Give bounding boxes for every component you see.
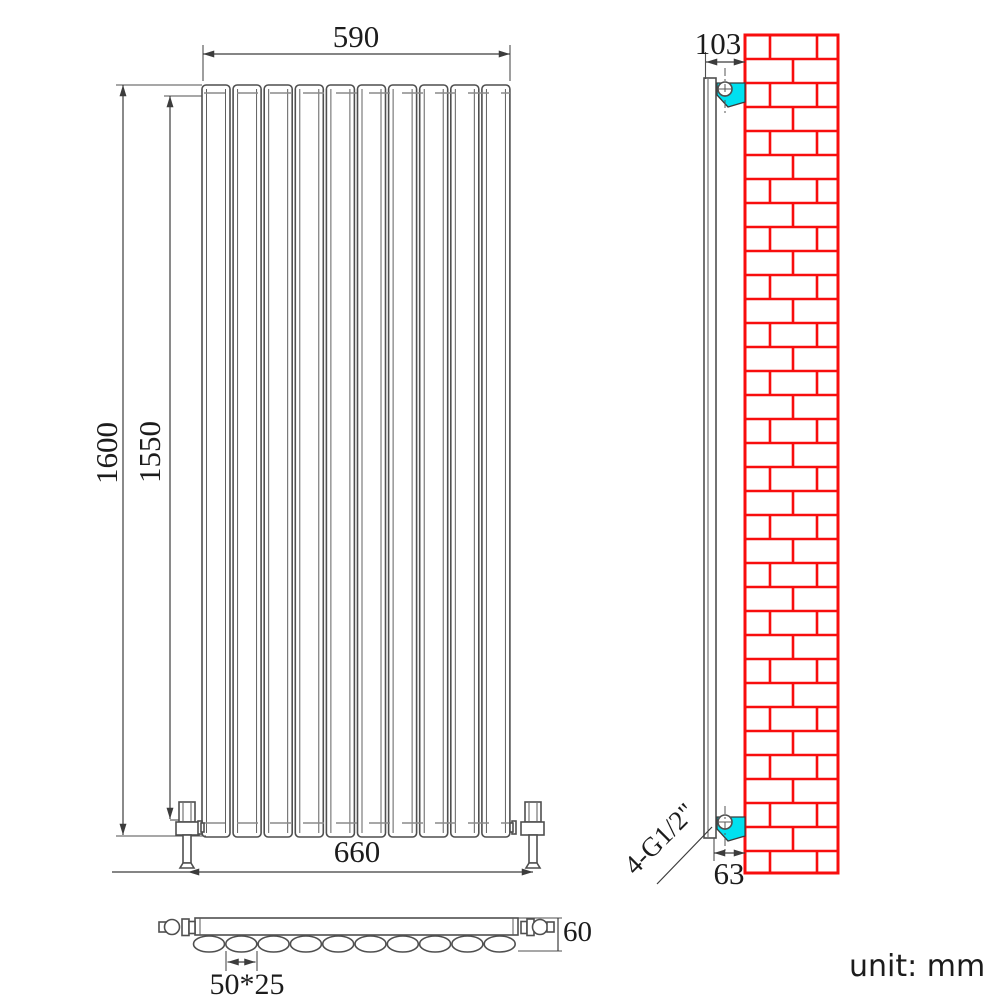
oval-tube — [452, 936, 483, 952]
valve-pipe — [183, 835, 191, 863]
dim-wall-offset-top-label: 103 — [695, 26, 742, 61]
valve-knob — [525, 802, 541, 822]
top-rail — [195, 918, 518, 935]
dim-height-inner-label: 1550 — [132, 421, 167, 483]
wall-outline — [745, 35, 838, 873]
radiator-profile — [704, 78, 716, 838]
brick-wall — [745, 35, 838, 873]
end-cap — [547, 922, 554, 932]
valve-knob — [179, 802, 195, 822]
connection-port — [165, 920, 180, 935]
dim-height-outer-label: 1600 — [89, 422, 124, 484]
oval-tube — [258, 936, 289, 952]
unit-label: unit: mm — [849, 949, 985, 984]
oval-tube — [484, 936, 515, 952]
dim-depth-label: 60 — [563, 916, 592, 948]
oval-tube — [226, 936, 257, 952]
side-view: 103 63 4-G1/2" — [618, 26, 838, 891]
bottom-view: 60 50*25 — [159, 916, 592, 1001]
dim-bottom-width-label: 660 — [334, 834, 381, 869]
valve-coupling — [201, 823, 204, 832]
dim-top-width-label: 590 — [333, 19, 380, 54]
dim-tube-size-label: 50*25 — [210, 968, 285, 1001]
coupling — [521, 922, 527, 934]
radiator-technical-drawing: 590 1600 1550 660 — [0, 0, 1001, 1001]
coupling — [189, 922, 195, 934]
dim-wall-offset-bottom-label: 63 — [714, 856, 745, 891]
coupling — [182, 919, 189, 936]
oval-tube — [387, 936, 418, 952]
drawing-svg: 590 1600 1550 660 — [0, 0, 1001, 1001]
radiator-panels — [202, 85, 510, 837]
valve-coupling — [510, 823, 513, 832]
oval-tube — [323, 936, 354, 952]
oval-tubes — [194, 936, 516, 952]
valve-body — [176, 822, 199, 835]
valve-body — [521, 822, 544, 835]
front-view: 590 1600 1550 660 — [89, 19, 544, 872]
pipe-base — [180, 863, 194, 868]
valve-left — [176, 802, 204, 868]
oval-tube — [194, 936, 225, 952]
connection-port — [533, 920, 548, 935]
oval-tube — [355, 936, 386, 952]
oval-tube — [290, 936, 321, 952]
pipe-base — [526, 863, 540, 868]
connection-size-label: 4-G1/2" — [618, 797, 701, 880]
oval-tube — [420, 936, 451, 952]
valve-pipe — [529, 835, 537, 863]
valve-right — [510, 802, 544, 868]
